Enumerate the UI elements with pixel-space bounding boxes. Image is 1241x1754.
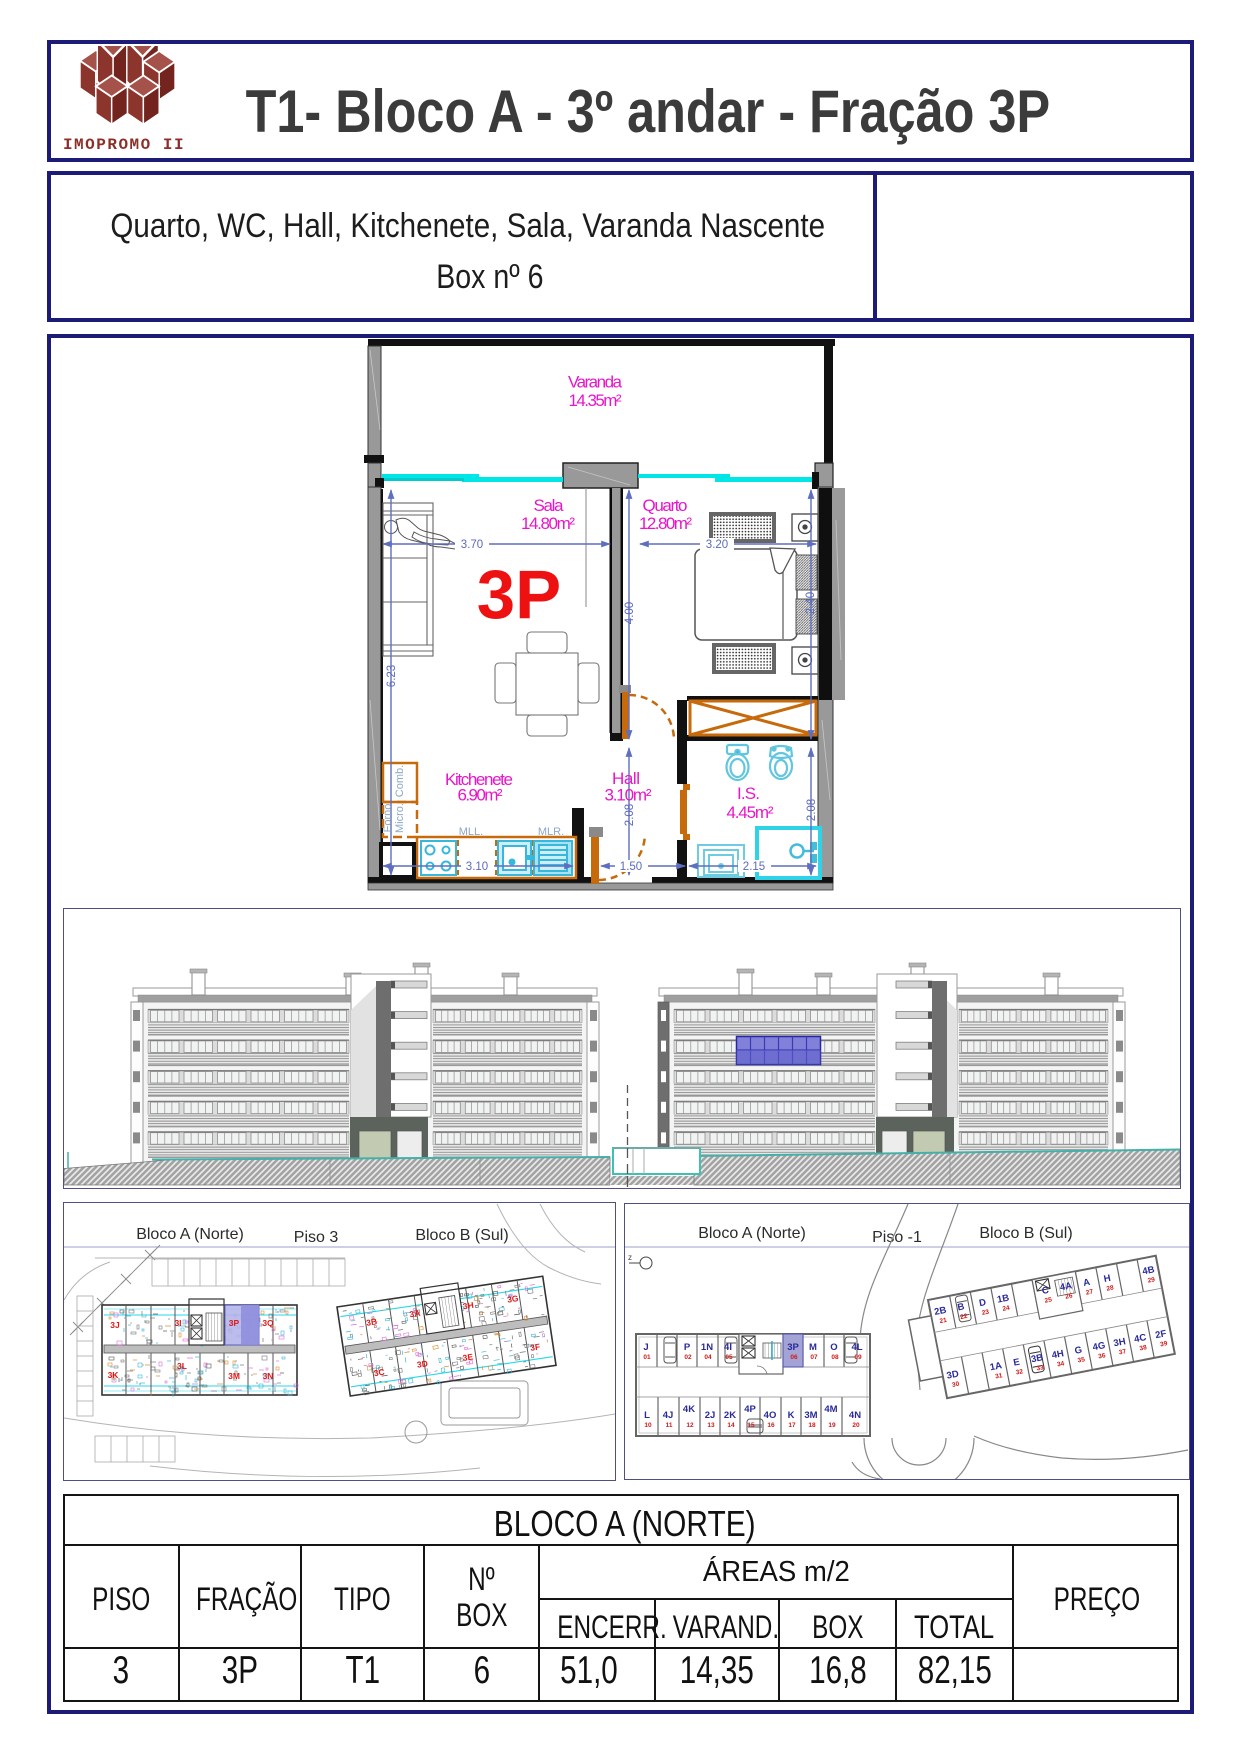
svg-text:4K: 4K [683,1404,695,1415]
svg-text:P: P [684,1342,691,1353]
svg-text:J: J [643,1342,648,1353]
svg-text:3B: 3B [1030,1352,1044,1365]
svg-text:3I: 3I [174,1318,181,1328]
svg-text:4H: 4H [1051,1348,1065,1361]
svg-text:4C: 4C [1133,1332,1147,1345]
svg-text:3F: 3F [529,1341,540,1352]
svg-text:6.23: 6.23 [386,665,398,687]
svg-text:10: 10 [644,1422,652,1429]
svg-text:3.10m²: 3.10m² [605,786,652,805]
svg-text:4B: 4B [1141,1264,1155,1277]
svg-text:3G: 3G [506,1293,519,1305]
svg-text:Bloco B (Sul): Bloco B (Sul) [415,1227,508,1244]
svg-text:K: K [788,1410,795,1421]
svg-text:20: 20 [852,1422,860,1429]
svg-text:Micro.: Micro. [394,803,406,833]
svg-text:2.40: 2.40 [805,592,817,614]
svg-text:2.15: 2.15 [743,861,765,873]
svg-text:3H: 3H [462,1300,474,1311]
svg-text:6.90m²: 6.90m² [458,786,503,805]
svg-text:11: 11 [666,1422,673,1429]
svg-text:Bloco A (Norte): Bloco A (Norte) [136,1226,244,1243]
svg-text:Bloco A (Norte): Bloco A (Norte) [698,1225,806,1242]
svg-text:4J: 4J [663,1410,674,1421]
svg-text:14.80m²: 14.80m² [521,514,575,533]
svg-text:08: 08 [831,1354,839,1361]
svg-text:14: 14 [727,1422,735,1429]
svg-text:1N: 1N [701,1342,713,1353]
svg-text:M: M [809,1342,817,1353]
svg-text:4P: 4P [744,1404,756,1415]
svg-text:4.00: 4.00 [624,602,636,624]
svg-text:1B: 1B [996,1293,1010,1306]
svg-text:3M: 3M [804,1410,817,1421]
svg-text:4N: 4N [849,1410,861,1421]
svg-text:3E: 3E [462,1351,474,1362]
svg-text:3D: 3D [416,1358,428,1369]
svg-text:3C: 3C [373,1367,385,1378]
svg-text:MLR.: MLR. [538,826,564,838]
svg-text:2B: 2B [933,1305,947,1318]
svg-text:4O: 4O [764,1410,777,1421]
svg-text:3H: 3H [1113,1336,1127,1349]
svg-text:2.08: 2.08 [806,799,818,821]
svg-text:07: 07 [810,1354,818,1361]
svg-text:3.20: 3.20 [706,539,728,551]
svg-text:4A: 4A [1059,1280,1073,1293]
svg-text:2F: 2F [1154,1328,1167,1341]
svg-text:Sala: Sala [534,496,565,515]
svg-text:1A: 1A [989,1360,1003,1373]
svg-text:3J: 3J [110,1320,120,1330]
svg-text:2J: 2J [705,1410,716,1421]
svg-text:3.10: 3.10 [466,861,488,873]
svg-text:19: 19 [828,1422,836,1429]
svg-text:4L: 4L [851,1342,862,1353]
svg-text:18: 18 [808,1422,816,1429]
svg-text:1.50: 1.50 [620,861,642,873]
svg-text:4.45m²: 4.45m² [727,803,774,822]
svg-text:L: L [644,1410,650,1421]
svg-text:3Q: 3Q [262,1318,274,1328]
svg-text:14.35m²: 14.35m² [569,391,622,410]
svg-text:Quarto: Quarto [643,496,688,515]
svg-text:15: 15 [747,1422,755,1429]
svg-text:16: 16 [767,1422,775,1429]
svg-text:05: 05 [725,1354,733,1361]
svg-text:Comb.: Comb. [394,765,406,797]
svg-text:4I: 4I [724,1342,732,1353]
svg-text:06: 06 [790,1354,798,1361]
svg-text:MLL.: MLL. [459,826,483,838]
svg-text:3P: 3P [787,1342,799,1353]
svg-text:I.S.: I.S. [737,784,760,803]
svg-text:3N: 3N [263,1371,274,1381]
svg-text:09: 09 [854,1354,862,1361]
svg-text:z: z [628,1253,632,1262]
svg-text:3.70: 3.70 [461,539,483,551]
svg-text:3P: 3P [477,556,561,633]
svg-text:4M: 4M [824,1404,837,1415]
svg-text:01: 01 [643,1354,651,1361]
svg-text:2K: 2K [724,1410,736,1421]
svg-text:3M: 3M [228,1371,240,1381]
svg-text:17: 17 [788,1422,796,1429]
svg-text:12: 12 [686,1422,694,1429]
svg-text:3P: 3P [229,1318,240,1328]
svg-text:3K: 3K [108,1370,120,1380]
svg-text:3A: 3A [409,1308,421,1319]
svg-text:Varanda: Varanda [568,373,623,392]
svg-text:04: 04 [704,1354,712,1361]
svg-text:O: O [830,1342,837,1353]
svg-text:3D: 3D [946,1369,960,1382]
svg-text:12.80m²: 12.80m² [639,514,692,533]
svg-text:Piso 3: Piso 3 [294,1229,339,1246]
svg-text:2.08: 2.08 [624,804,636,826]
svg-text:Bloco B (Sul): Bloco B (Sul) [979,1225,1072,1242]
svg-text:Piso -1: Piso -1 [872,1229,922,1246]
svg-text:3B: 3B [365,1316,377,1327]
svg-text:3L: 3L [177,1361,187,1371]
svg-text:Forno: Forno [382,804,394,833]
svg-text:02: 02 [684,1354,692,1361]
svg-text:13: 13 [707,1422,715,1429]
